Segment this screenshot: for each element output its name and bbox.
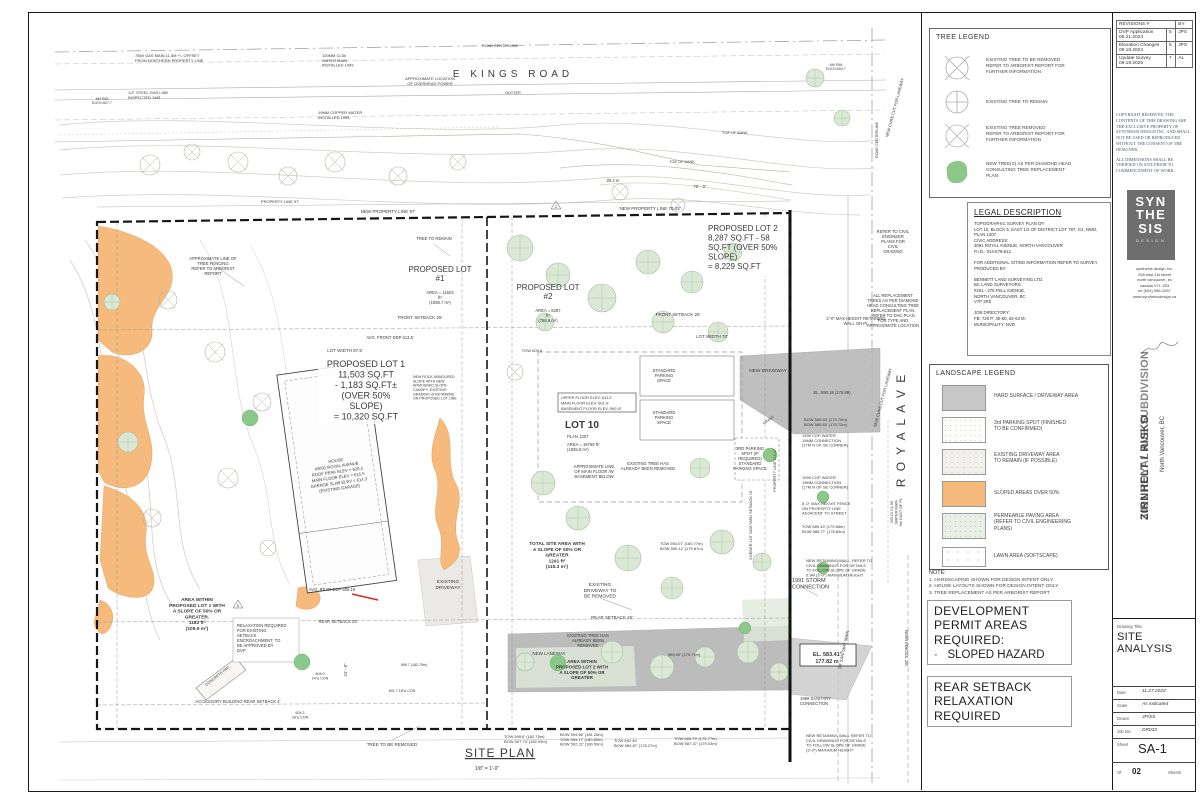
tree-symbol-remain <box>588 284 616 312</box>
dev-permit-callout: DEVELOPMENT PERMIT AREAS REQUIRED: · SLO… <box>927 600 1072 665</box>
tree-symbol-remain <box>531 471 555 495</box>
plan-annotation: LOT WIDTH 97.5' <box>327 348 363 353</box>
plan-annotation: ALL REPLACEMENTTREES AS PER DIAMONDHEAD … <box>867 293 919 328</box>
landscape-label: EXISTING DRIVEWAY AREA TO REMAIN (IF POS… <box>994 452 1102 465</box>
tree-symbol-remain <box>737 641 759 663</box>
plan-annotation: ROAD CENTERLINE <box>482 44 519 48</box>
plan-annotation: MH RIMELEV=607.7 <box>92 97 112 105</box>
plan-annotation: TOP OF BANK <box>722 131 748 135</box>
plan-annotation: STANDARDPARKINGSPACE <box>653 368 676 383</box>
panel-divider-right <box>1112 12 1113 790</box>
plan-annotation: 200 DI CL 50WATER MAIN5m EAST OF PL <box>890 498 903 526</box>
plan-annotation: 7869 GAS MAIN 11.5M +/- OFFSETFROM NORTH… <box>135 53 204 63</box>
tree-symbol-removed <box>279 167 297 185</box>
drawn-label: Drawn <box>1117 716 1129 721</box>
drawing-title-label: Drawing Title <box>1117 624 1142 629</box>
legal-description-title: LEGAL DESCRIPTION <box>974 208 1062 217</box>
tree-symbol-remain <box>118 432 138 452</box>
tree-symbol-remain <box>615 545 641 571</box>
plan-annotation: 100MM CL50WATER MAININSTALLED 1999 <box>322 53 354 68</box>
meta-divider <box>1112 699 1196 700</box>
project-location-vertical: North Vancouver, BC <box>1160 416 1166 472</box>
list-line: ALL DIMENSIONS SHALL BE VERIFIED ON SITE… <box>1116 157 1193 174</box>
date-label: Date <box>1117 690 1126 695</box>
tree-legend-label: EXISTING TREE TO BE REMOVED REFER TO ARB… <box>986 57 1104 75</box>
plan-annotation: 599.7 (182.79m) <box>401 663 427 667</box>
list-line: COPYRIGHT RESERVED. THE CONTENTS OF THIS… <box>1116 112 1193 153</box>
hard-surface-swatch <box>942 385 986 411</box>
tree-symbol-removed <box>325 152 345 172</box>
drawing-title: SITE ANALYSIS <box>1117 631 1200 655</box>
list-line: FOR ADDITIONAL SITING INFORMATION REFER … <box>974 260 1104 271</box>
meta-divider <box>1112 712 1196 713</box>
tree-symbol-remain <box>834 110 850 126</box>
tree-removed-icon <box>942 53 972 83</box>
plan-annotation: 18" STORM MAIN <box>904 630 909 667</box>
plan-annotation: CORNER LOT SIDEYARD SETBACK 15' <box>749 490 753 560</box>
landscape-label: LAWN AREA (SOFTSCAPE) <box>994 553 1102 559</box>
bullet-icon: · <box>934 649 938 661</box>
plan-annotation: TREE TO BE REMOVED <box>367 742 418 747</box>
tree-symbol-new <box>294 654 310 670</box>
list-line: MUNICIPALITY: NVD <box>974 322 1104 328</box>
tree-symbol-remain <box>661 577 683 599</box>
revision-by: JPS <box>1176 29 1193 42</box>
revisions-table: REVISIONS # BY DVP Application 05.21.202… <box>1116 20 1193 68</box>
plan-annotation: 70' - 0" <box>694 184 708 189</box>
copyright-note: COPYRIGHT RESERVED. THE CONTENTS OF THIS… <box>1116 112 1193 178</box>
plan-annotation: 24' - 8" <box>343 663 348 677</box>
landscape-legend-title: LANDSCAPE LEGEND <box>936 370 1016 377</box>
sloped-area-swatch <box>942 481 986 507</box>
landscape-label: SLOPED AREAS OVER 50% <box>994 490 1102 496</box>
notes: NOTE: 1. HARDSCAPING SHOWN FOR DESIGN IN… <box>929 570 1119 597</box>
tree-legend-title: TREE LEGEND <box>936 34 990 41</box>
revision-row: Elevation Changes 09.18.2024 6 JPS <box>1117 42 1193 55</box>
plan-annotation: NEW CURB CUT FOR LANEWAY <box>884 77 905 137</box>
plan-annotation: PLAN 1307 <box>567 434 589 439</box>
plan-annotation: 589.59' (179.71m) <box>668 652 701 657</box>
tree-legend-label: NEW TREE(S) AS PER DIAMOND HEAD CONSULTI… <box>986 161 1104 179</box>
plan-annotation: GUTTER <box>505 91 521 95</box>
tree-symbol-new <box>242 410 258 426</box>
plan-annotation: PROPERTY LINE 114.27' <box>773 448 777 492</box>
logo-line: SIS <box>1127 222 1175 235</box>
plan-annotation: REFER TO CIVILENGINEERPLANS FORCIVILGRAD… <box>877 229 910 254</box>
plan-annotation: REAR SETBACK 25' <box>591 615 633 620</box>
plan-annotation: STANDARDPARKINGSPACE <box>653 410 676 425</box>
plan-annotation: FRONT SETBACK 25' <box>398 315 443 320</box>
plan-annotation: EL. 590.19 (179.89) <box>813 390 851 395</box>
concrete-pad <box>196 658 246 700</box>
sheets-label: Sheets <box>1168 770 1181 775</box>
plan-annotation: REAR SETBACK 25' <box>319 619 358 624</box>
dev-permit-text: DEVELOPMENT PERMIT AREAS REQUIRED: <box>934 604 1065 647</box>
revisions-header: REVISIONS # <box>1117 21 1176 29</box>
demo-mark <box>352 594 378 600</box>
tree-symbol-removed <box>228 152 248 172</box>
landscape-legend: LANDSCAPE LEGEND HARD SURFACE / DRIVEWAY… <box>929 364 1109 570</box>
tree-legend-label: EXISTING TREE TO REMAIN <box>986 99 1104 105</box>
tree-symbol-remain <box>710 530 734 554</box>
tree-symbol-removed <box>507 364 523 380</box>
tree-symbol-removed <box>143 509 161 527</box>
tree-symbol-removed <box>184 144 200 160</box>
plan-annotation: 1999 COP WATER19MM CONNECTION(17M N OF S… <box>802 475 849 490</box>
panel-divider-left <box>921 12 922 790</box>
tree-symbol-removed <box>218 468 238 488</box>
list-line: LOT 10, BLOCK 5, EAST 1/2 OF DISTRICT LO… <box>974 227 1104 238</box>
job-value: DR033 <box>1142 728 1157 733</box>
list-line: www.synthesisdesign.ca <box>1116 294 1193 300</box>
plan-annotation: AREA = 11503ft²(1068.7 m²) <box>426 290 454 305</box>
project-title2-vertical: 3091 ROYAL AVE SUBDIVISION <box>1139 351 1151 520</box>
plan-annotation: 2 <box>555 204 558 209</box>
tree-symbol-remain <box>507 235 533 261</box>
tree-symbol-removed <box>612 184 628 200</box>
lawn-area-swatch <box>942 547 986 567</box>
tree-symbol-remain <box>681 271 703 293</box>
tree-symbol-remain <box>708 322 728 342</box>
plan-annotation: 1/8" = 1'-0" <box>475 766 500 772</box>
plan-annotation: 1991 STORMCONNECTION <box>792 578 829 591</box>
plan-annotation: ROAD CENTERLINE <box>875 121 879 158</box>
tree-symbol-remain <box>770 663 788 681</box>
plan-annotation: TOE OF BANK <box>669 160 695 164</box>
plan-annotation: APPROXIMATE LINE OFTREE FENCINGREFER TO … <box>189 256 237 276</box>
plan-annotation: FRONT SETBACK 25' <box>656 312 701 317</box>
tree-symbol-removed <box>253 393 271 411</box>
permeable-paving-swatch <box>942 513 986 539</box>
landscape-label: 3rd PARKING SPOT (FINISHED TO BE CONFIRM… <box>994 420 1102 433</box>
plan-annotation: NEW RETAINING WALL, REFER TOCIVIL DRAWIN… <box>806 558 872 577</box>
plan-annotation: 19MM COPPER WATERINSTALLED 1998 <box>318 110 362 120</box>
existing-driveway-swatch <box>942 449 986 475</box>
dev-permit-bullet-label: SLOPED HAZARD <box>947 649 1044 661</box>
tree-symbol-remain <box>636 250 660 274</box>
sloped-areas <box>94 226 460 634</box>
tree-symbol-remain <box>650 655 674 679</box>
tree-symbol-remain <box>690 458 710 478</box>
scale-value: As indicated <box>1142 702 1168 707</box>
legal-description: LEGAL DESCRIPTION TOPOGRAPHIC SURVEY PLA… <box>967 202 1111 356</box>
tree-removed-prior-icon <box>942 121 972 151</box>
plan-annotation: APPROXIMATE LOCATIONOF OVERHEAD POWER <box>405 76 455 86</box>
revisions-by-header: BY <box>1176 21 1193 29</box>
revision-num: 6 <box>1167 42 1176 55</box>
plan-annotation: E KINGS ROAD <box>453 69 573 80</box>
new-tree-icon <box>942 157 972 187</box>
revision-desc: DVP Application 05.21.2024 <box>1117 29 1167 42</box>
scale-label: Scale <box>1117 703 1127 708</box>
sheet-number: SA-1 <box>1138 741 1167 756</box>
plan-annotation: 604.924"⌀ CON <box>312 672 329 680</box>
logo-line: THE <box>1127 208 1175 221</box>
revision-by: AL <box>1176 55 1193 68</box>
firm-address: synthesis design inc.258 east 1st street… <box>1116 266 1193 300</box>
plan-annotation: AVG. FRONT DDP 613.5' <box>366 335 414 340</box>
tree-symbol-removed <box>389 167 407 185</box>
tree-symbol-remain <box>753 553 771 571</box>
sheet-count: 02 <box>1132 767 1141 776</box>
plan-annotation: EXISTINGDRIVEWAY TOBE REMOVED <box>584 582 617 600</box>
revision-desc: Elevation Changes 09.18.2024 <box>1117 42 1167 55</box>
plan-annotation: MH RIMELEV=604.7 <box>826 63 846 71</box>
plan-annotation: 601.7 18"⌀ CON <box>389 689 416 693</box>
date-value: 11.27.2023 <box>1142 689 1166 694</box>
plan-annotation: NEW LANEWAY <box>532 651 565 656</box>
tree-symbol-remain <box>806 69 824 87</box>
notes-title: NOTE: <box>929 570 1119 576</box>
titleblock-divider <box>1112 618 1196 619</box>
sheet-label: Sheet <box>1117 742 1128 747</box>
revision-num: 5 <box>1167 29 1176 42</box>
tree-symbol-removed <box>205 342 225 362</box>
tree-symbol-remain <box>566 506 590 530</box>
revision-row: Update Survey 09.19.2025 7 AL <box>1117 55 1193 68</box>
meta-divider <box>1112 738 1196 739</box>
plan-annotation: TOTAL SITE AREA WITHA SLOPE OF 50% ORGRE… <box>529 541 585 570</box>
legal-description-lines: TOPOGRAPHIC SURVEY PLAN OF:LOT 10, BLOCK… <box>974 221 1104 327</box>
plan-annotation: PROPOSED LOT#2 <box>516 283 579 301</box>
drawing-sheet: E KINGS ROADROAD CENTERLINE7869 GAS MAIN… <box>0 0 1200 800</box>
plan-annotation: TOW 609.6 <box>522 348 543 353</box>
plan-trees <box>104 69 850 681</box>
plan-annotation: EXISTINGDRIVEWAY <box>435 579 461 591</box>
list-line: 3. TREE REPLACEMENT AS PER ARBORIST REPO… <box>929 591 1119 597</box>
site-plan-drawing: E KINGS ROADROAD CENTERLINE7869 GAS MAIN… <box>29 13 921 789</box>
meta-divider <box>1112 762 1196 763</box>
plan-annotation: TOW 593.07' (180.77m)BOW 590.12' (179.87… <box>660 541 704 551</box>
plan-annotation: 1/2" STEEL GAS LINEINSPECTED 1981 <box>128 90 169 100</box>
rear-setback-callout: REAR SETBACK RELAXATION REQUIRED <box>927 676 1072 727</box>
tree-symbol-remain <box>516 653 534 671</box>
plan-annotation: R O Y A L A V E <box>894 373 908 488</box>
plan-annotation: PROPERTY LINE 97' <box>261 199 299 204</box>
landscape-label: PERMEABLE PAVING AREA (REFER TO CIVIL EN… <box>994 513 1102 532</box>
revision-by: JPS <box>1176 42 1193 55</box>
logo-subtitle: DESIGN <box>1127 238 1175 243</box>
plan-annotation: 604.328"⌀ CON <box>292 711 309 719</box>
plan-annotation: BOW 589.63' (179.70m)BOW 589.63' (179.72… <box>804 417 848 427</box>
tree-symbol-removed <box>140 155 160 175</box>
plan-annotation: NEW DRIVEWAY <box>749 368 787 374</box>
plan-annotation: 1999 COP WATER19MM CONNECTION(17M N OF S… <box>802 433 849 448</box>
plan-annotation: 1999 SANITARYCONNECTION <box>800 696 831 706</box>
job-label: Job No. <box>1117 729 1131 734</box>
notes-list: 1. HARDSCAPING SHOWN FOR DESIGN INTENT O… <box>929 578 1119 597</box>
tree-symbol-remain <box>104 294 120 310</box>
firm-logo: SYN THE SIS DESIGN <box>1127 190 1175 260</box>
third-parking-swatch <box>942 417 986 443</box>
rear-setback-text: REAR SETBACK RELAXATION REQUIRED <box>934 680 1065 723</box>
plan-annotation: TOW 599.6' (182.75m)BOW 597.74' (182.09m… <box>504 734 548 744</box>
logo-line: SYN <box>1127 195 1175 208</box>
tree-symbol-remain <box>695 647 715 667</box>
plan-annotation: ACCESSORY BUILDING REAR SETBACK 4' <box>196 699 281 704</box>
plan-annotation: AREA = 19759 ft²(1835.6 m²) <box>567 442 600 452</box>
tree-symbol-removed <box>260 540 276 556</box>
plan-annotation: SITE PLAN <box>465 746 535 760</box>
plan-annotation: TOW 592.39BOW 584.87' (178.27m) <box>614 738 658 748</box>
plan-annotation: EXISTING TREE HASALREADY BEEN REMOVED <box>621 461 675 471</box>
plan-annotation: NEW RETAINING WALL REFER TOCIVIL DRAWING… <box>806 733 871 752</box>
plan-annotation: 29.2 m <box>607 178 620 183</box>
plan-annotation: 6'-0" MAX HEIGHT FENCEON PROPERTY LINEAD… <box>802 501 851 516</box>
tree-symbol-remain <box>601 641 623 663</box>
plan-annotation: NEW ROCK ARMOUREDSLOPE WITH NEWARMOURED … <box>413 375 457 401</box>
plan-annotation: NEW PROPERTY LINE 97' <box>361 209 416 214</box>
of-label: Of <box>1117 770 1121 775</box>
plan-annotation: APPROXIMATE LINEOF MAIN FLOOR /WBASEMENT… <box>574 464 615 479</box>
plan-annotation: AVG. REAR DDP 605.19 <box>309 587 356 592</box>
tree-remain-icon <box>942 87 972 117</box>
landscape-label: HARD SURFACE / DRIVEWAY AREA <box>994 393 1102 399</box>
drawn-value: JP/SS <box>1142 715 1155 720</box>
plan-annotation: AREA WITHINPROPOSED LOT 1 WITHA SLOPE OF… <box>169 597 225 632</box>
tree-legend: TREE LEGEND EXISTING TREE TO BE REMOVED … <box>929 28 1111 198</box>
plan-annotation: TOW 589.43' (179.66m)BOW 586.77' (178.83… <box>802 524 846 534</box>
meta-divider <box>1112 686 1196 687</box>
plan-annotation: LOT WIDTH 70' <box>696 334 728 339</box>
plan-annotation: 5 <box>237 603 240 608</box>
revision-num: 7 <box>1167 55 1176 68</box>
plan-annotation: LOT 10 <box>565 420 599 431</box>
revision-desc: Update Survey 09.19.2025 <box>1117 55 1167 68</box>
meta-divider <box>1112 725 1196 726</box>
revision-row: DVP Application 05.21.2024 5 JPS <box>1117 29 1193 42</box>
tree-symbol-removed <box>450 154 466 170</box>
plan-annotation: BOW 594.66' (181.26m)TOW 593.17' (180.80… <box>560 732 604 747</box>
dev-permit-bullet: · SLOPED HAZARD <box>934 649 1065 661</box>
tree-legend-label: EXISTING TREE REMOVED REFER TO ARBORIST … <box>986 125 1104 143</box>
plan-annotation: TREE TO REMAIN <box>416 236 451 241</box>
plan-annotation: NEW PROPERTY LINE 70.03' <box>620 206 681 211</box>
plan-annotation: TOW 589.79' (179.77m)BOW 587.37' (179.03… <box>674 736 718 746</box>
tree-symbol-new <box>739 622 751 634</box>
